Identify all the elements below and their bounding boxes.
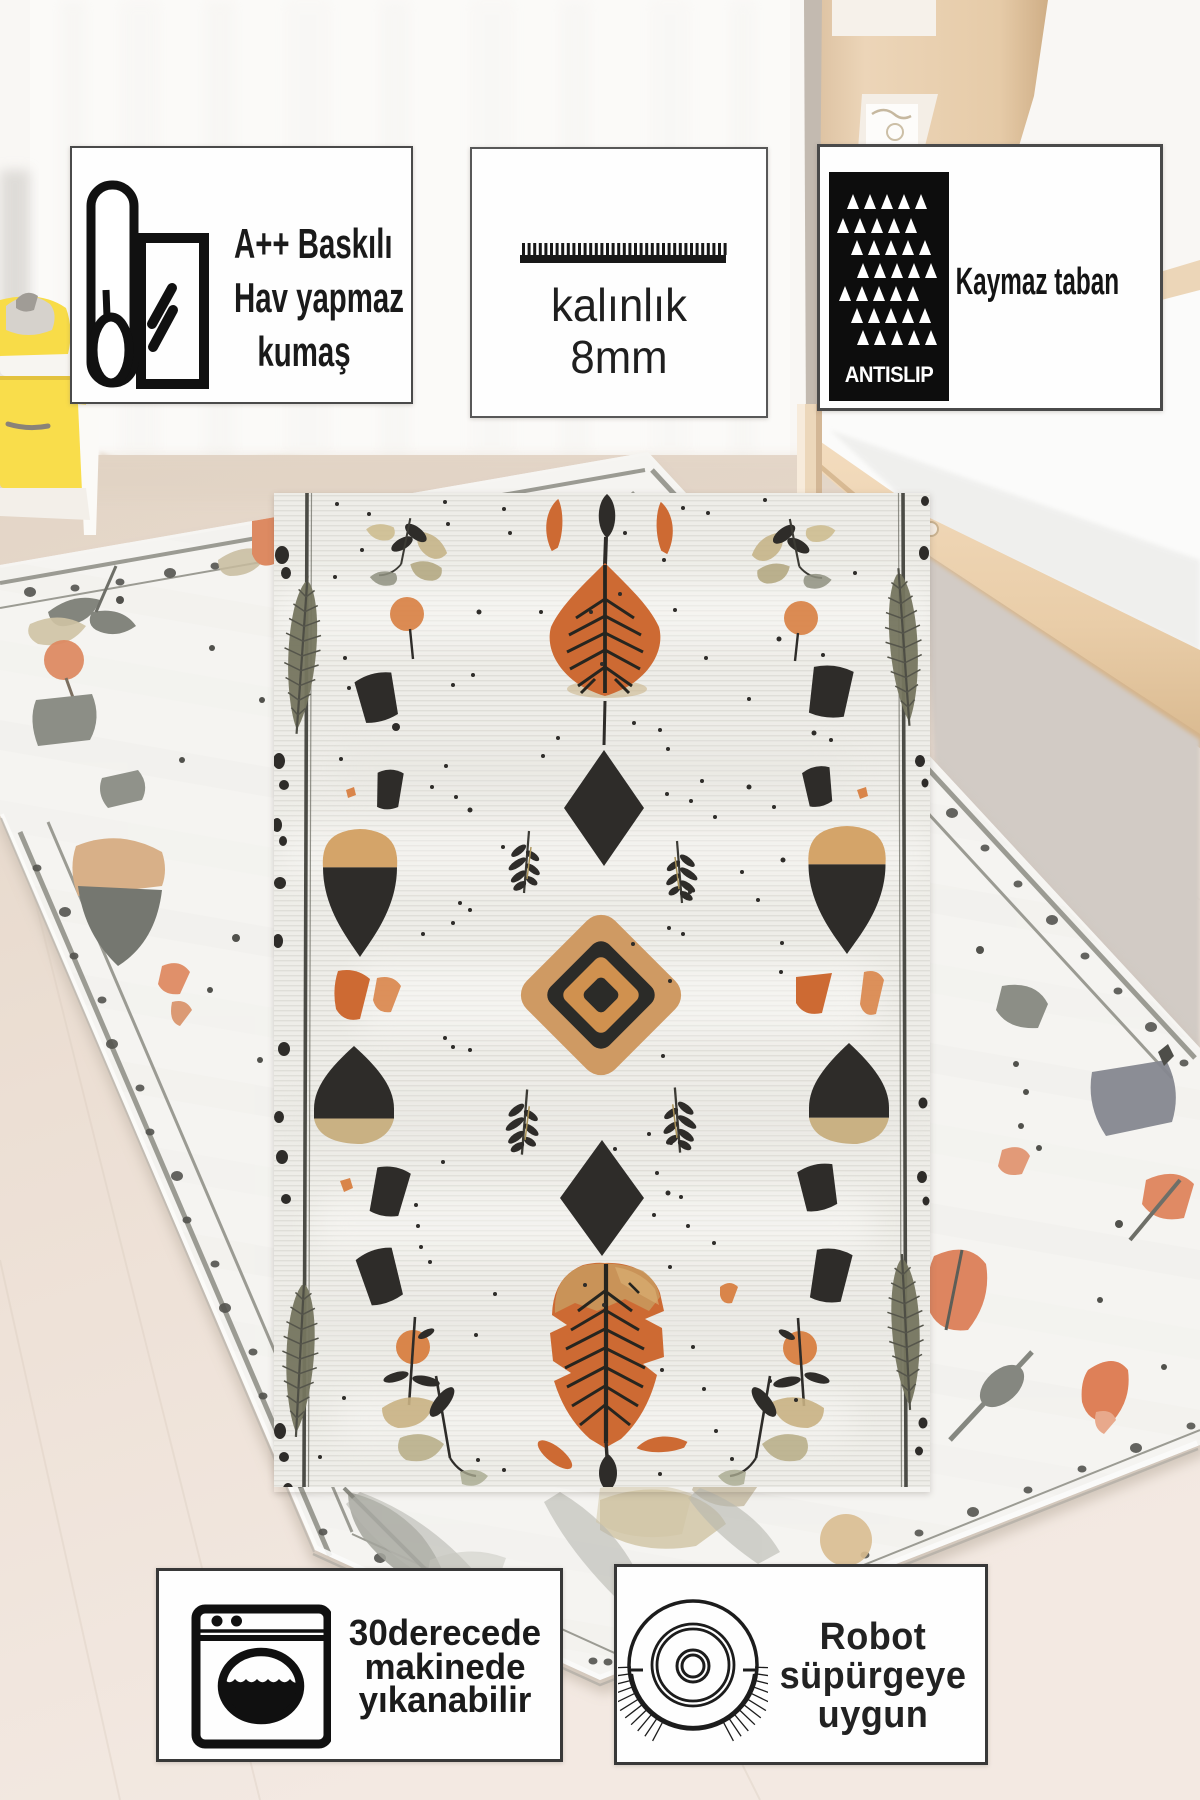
- svg-text:ANTISLIP: ANTISLIP: [845, 363, 934, 387]
